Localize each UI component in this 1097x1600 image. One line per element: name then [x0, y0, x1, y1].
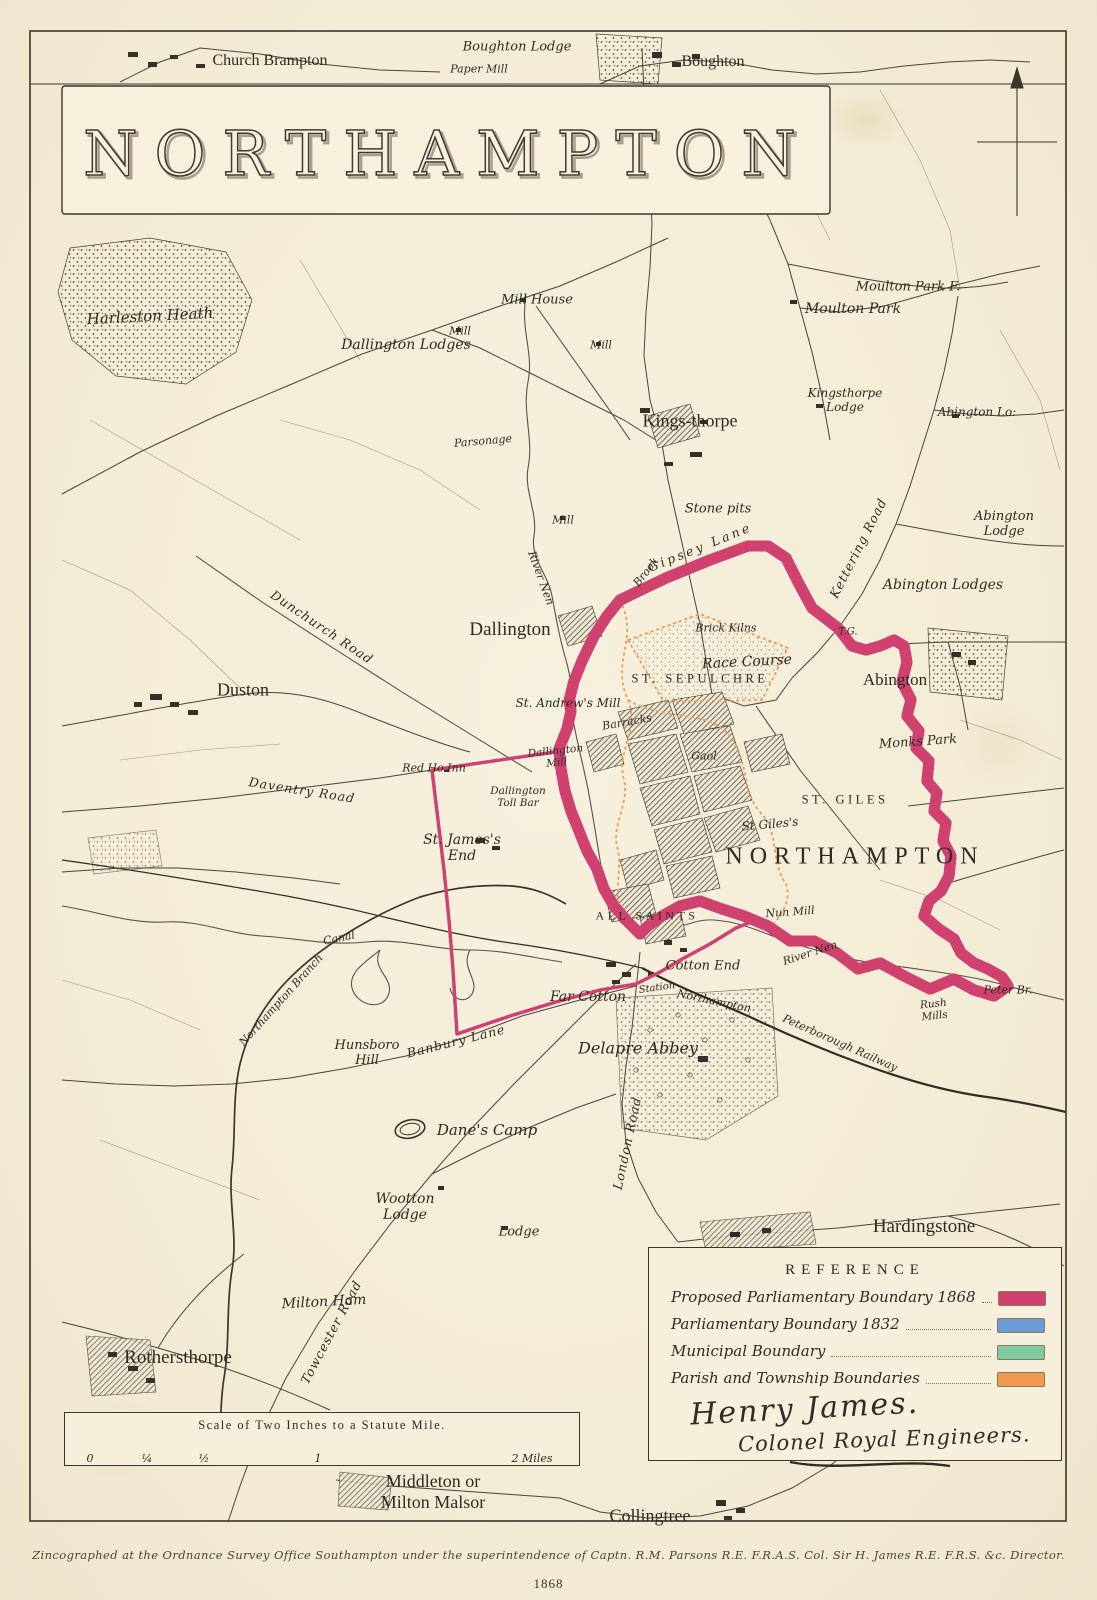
legend-swatch-proposed-1868: [998, 1291, 1046, 1306]
map-label: Harleston Heath: [86, 304, 213, 329]
map-label: Race Course: [702, 652, 793, 673]
map-label: Boughton Lodge: [463, 40, 572, 55]
imprint-text: Zincographed at the Ordnance Survey Offi…: [0, 1548, 1097, 1562]
map-label: Wootton Lodge: [376, 1191, 435, 1223]
map-label: Middleton or Milton Malsor: [381, 1471, 486, 1513]
map-label: Mill: [552, 514, 574, 527]
legend-leader-dots: [831, 1356, 991, 1357]
antique-map-sheet: NORTHAMPTON NORTHAMPTON Church BramptonB…: [0, 0, 1097, 1600]
map-label: Lodge: [499, 1225, 540, 1240]
map-label: Rush Mills: [919, 997, 948, 1024]
map-label: Abington: [863, 670, 927, 690]
map-label: Dunchurch Road: [268, 587, 376, 667]
map-label: T.G.: [838, 627, 857, 638]
map-label: Paper Mill: [450, 63, 508, 76]
map-label: Abington Lodge: [974, 509, 1034, 539]
map-label: Hardingstone: [873, 1216, 975, 1238]
map-label: Dallington Toll Bar: [490, 785, 546, 809]
map-label: Rothersthorpe: [124, 1347, 232, 1369]
map-label: ST. SEPULCHRE: [632, 672, 769, 687]
map-label: St. Andrew's Mill: [516, 696, 621, 710]
map-label: Mill House: [501, 293, 573, 308]
scale-bar-title: Scale of Two Inches to a Statute Mile.: [65, 1418, 579, 1433]
map-label: Dallington Mill: [527, 742, 585, 772]
map-label: NORTHAMPTON: [725, 844, 984, 871]
publication-year: 1868: [0, 1576, 1097, 1592]
map-label: St. James's End: [423, 832, 501, 864]
map-label: Gaol: [691, 750, 717, 763]
map-label: Barracks: [601, 711, 653, 733]
map-label: Dallington: [469, 619, 550, 641]
map-label: Boughton: [681, 53, 744, 71]
map-label: Cotton End: [666, 959, 741, 974]
map-label: Parsonage: [453, 432, 512, 450]
legend-item-proposed-1868: Proposed Parliamentary Boundary 1868: [671, 1288, 1045, 1306]
scale-tick-label: ¼: [142, 1452, 153, 1465]
map-label: Moulton Park F.: [856, 280, 961, 295]
map-label: Red Ho Inn: [402, 762, 466, 775]
map-label: Monks Park: [878, 732, 957, 752]
map-label: Nun Mill: [765, 904, 815, 920]
map-label: Canal: [322, 928, 356, 947]
legend-label: Parish and Township Boundaries: [671, 1369, 920, 1387]
legend-label: Proposed Parliamentary Boundary 1868: [671, 1288, 976, 1306]
map-label: St Giles's: [741, 815, 799, 834]
map-label: Banbury Lane: [405, 1022, 507, 1061]
map-label: Abington Lo:: [938, 405, 1016, 419]
map-label: Northampton: [676, 987, 752, 1015]
map-label: Kings-thorpe: [643, 411, 738, 432]
scale-tick-label: ½: [199, 1452, 210, 1465]
map-label: Northampton Branch: [236, 951, 325, 1048]
scale-tick-label: 1: [315, 1452, 322, 1465]
map-label: Station: [638, 980, 676, 996]
map-label: Far Cotton: [550, 989, 626, 1005]
map-label: ALL SAINTS: [596, 909, 699, 924]
map-label: Brick Kilns: [695, 622, 756, 635]
map-label: Peterborough Railway: [781, 1012, 900, 1074]
legend-swatch-parliamentary-1832: [997, 1318, 1045, 1333]
signature-block: Henry James. Colonel Royal Engineers.: [660, 1388, 1052, 1451]
scale-tick-label: 0: [87, 1452, 94, 1465]
legend-item-parliamentary-1832: Parliamentary Boundary 1832: [671, 1315, 1045, 1333]
legend-header: REFERENCE: [649, 1262, 1061, 1279]
scale-tick-label: 2 Miles: [512, 1452, 553, 1465]
legend-leader-dots: [982, 1302, 992, 1303]
map-label: Mill: [590, 339, 612, 352]
map-label: Hunsboro Hill: [335, 1038, 400, 1068]
map-label: Gipsey Lane: [646, 519, 755, 575]
legend-label: Municipal Boundary: [671, 1342, 825, 1360]
map-label: ST. GILES: [802, 793, 889, 808]
legend-swatch-municipal: [997, 1345, 1045, 1360]
map-label: Daventry Road: [248, 774, 356, 806]
map-label: Church Brampton: [212, 52, 327, 70]
map-label: Dane's Camp: [437, 1121, 537, 1139]
legend-item-municipal: Municipal Boundary: [671, 1342, 1045, 1360]
map-label: Kettering Road: [826, 495, 889, 600]
map-label: Abington Lodges: [883, 577, 1003, 593]
map-label: Kingsthorpe Lodge: [808, 386, 883, 414]
map-label: Delapre Abbey: [578, 1039, 698, 1058]
map-label: River Nen: [781, 938, 839, 968]
map-label: Duston: [217, 680, 269, 701]
map-label: Moulton Park: [805, 301, 901, 317]
legend-label: Parliamentary Boundary 1832: [671, 1315, 900, 1333]
map-label: Stone pits: [685, 502, 752, 517]
map-label: Collingtree: [610, 1506, 691, 1527]
map-label: Peter Br.: [984, 984, 1033, 997]
map-label: Mill: [449, 325, 471, 338]
map-label: Dallington Lodges: [341, 337, 471, 353]
map-label: River Nen: [525, 549, 557, 607]
map-label: London Road: [610, 1095, 644, 1191]
legend-leader-dots: [906, 1329, 991, 1330]
